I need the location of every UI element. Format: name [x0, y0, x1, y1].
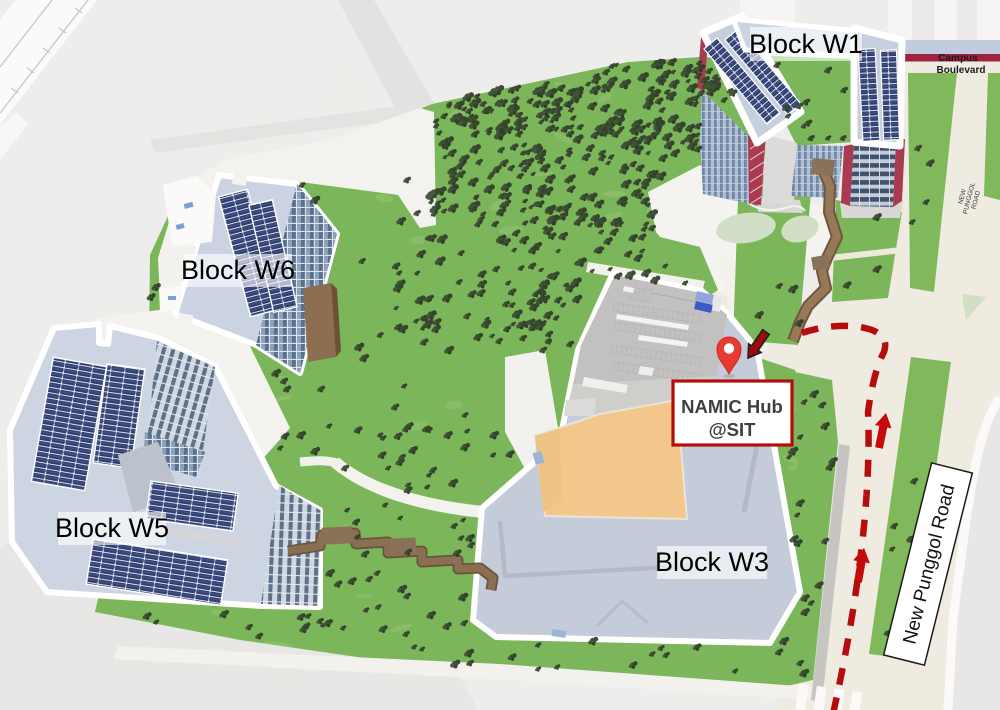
svg-text:Block W1: Block W1	[749, 29, 863, 59]
svg-text:NAMIC Hub: NAMIC Hub	[681, 396, 783, 417]
svg-text:@SIT: @SIT	[709, 419, 757, 440]
svg-text:Block W5: Block W5	[55, 513, 169, 543]
svg-text:Campus: Campus	[938, 53, 978, 64]
svg-text:Block W6: Block W6	[181, 255, 295, 285]
svg-text:Boulevard: Boulevard	[937, 65, 986, 76]
svg-text:Block W3: Block W3	[655, 547, 769, 577]
